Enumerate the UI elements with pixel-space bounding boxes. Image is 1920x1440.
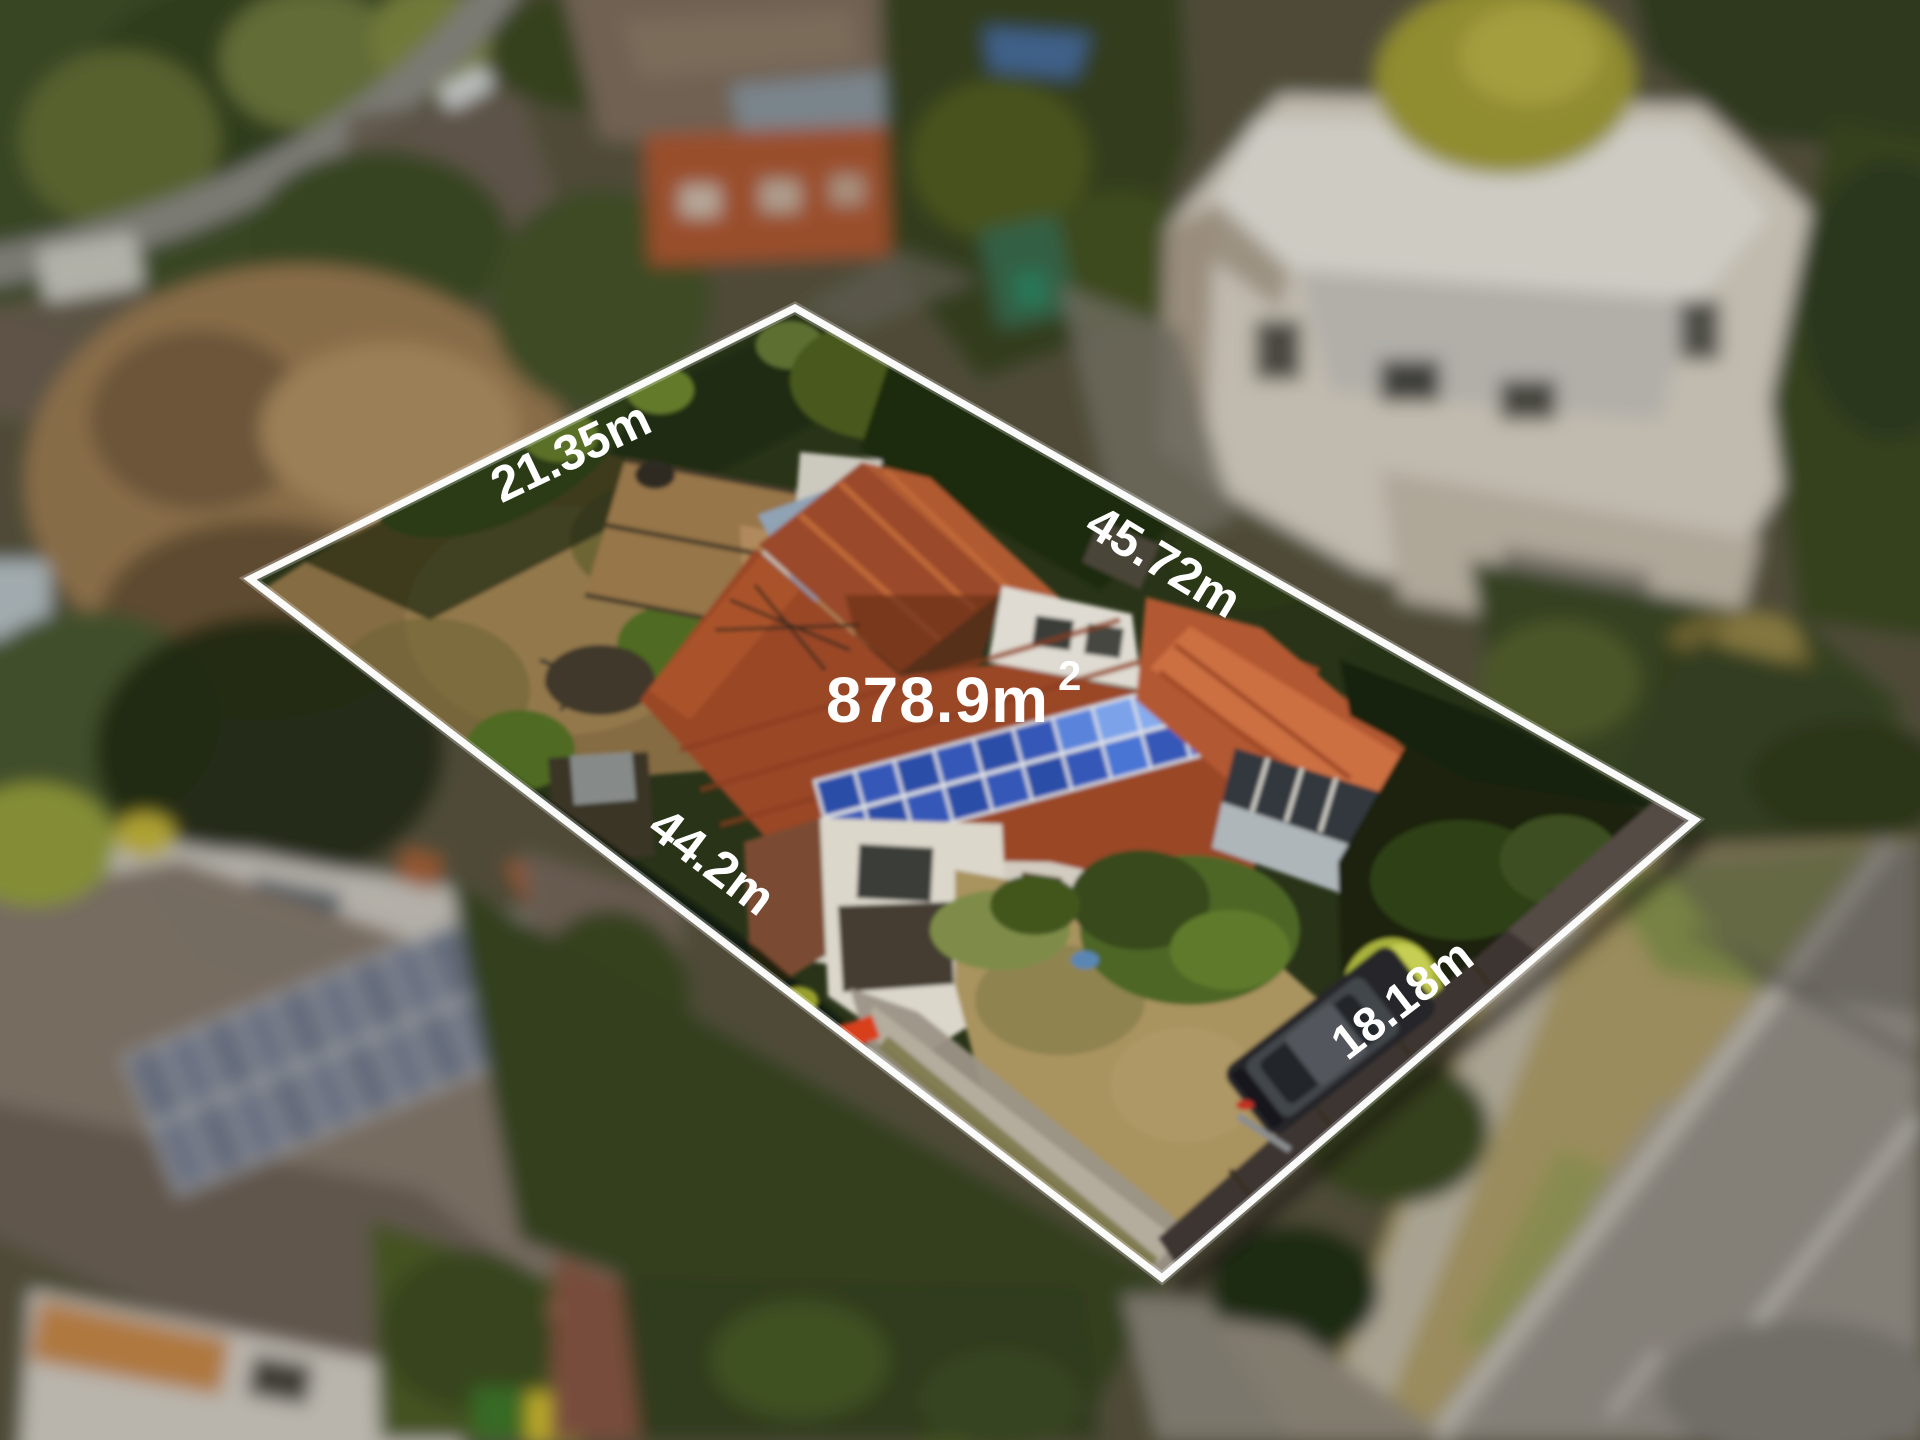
svg-text:878.9m: 878.9m [826, 664, 1049, 736]
svg-text:2: 2 [1058, 652, 1081, 699]
